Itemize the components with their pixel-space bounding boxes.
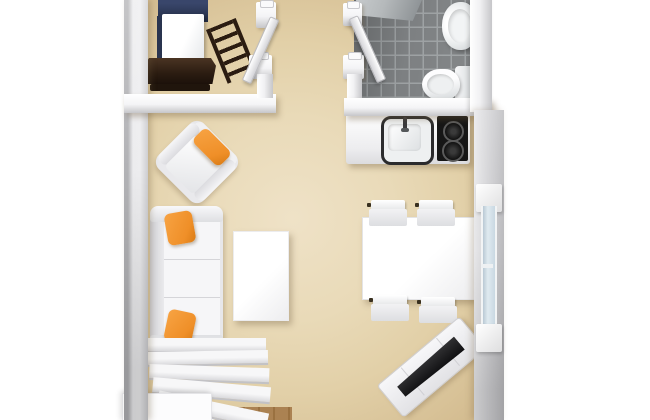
dining-chair [419, 297, 457, 324]
burner-icon [443, 121, 464, 142]
sofa-backrest [150, 211, 165, 346]
chair-seat [371, 304, 409, 321]
doorpost-cap [260, 0, 274, 8]
wall-bedroom-east-stub [257, 74, 273, 98]
window-glass [481, 206, 497, 332]
footboard-rail [150, 84, 210, 91]
dining-table [362, 217, 475, 300]
chair-seat [419, 306, 457, 323]
chair-foot [369, 298, 373, 302]
bed [140, 0, 240, 100]
kitchen-faucet-handle [401, 128, 409, 132]
chair-foot [415, 203, 419, 207]
burner-icon [442, 140, 464, 162]
toilet-seat [427, 74, 454, 95]
sofa [150, 206, 223, 351]
coffee-table [233, 231, 289, 321]
dining-chair [371, 295, 409, 322]
dining-chair [417, 200, 455, 227]
kitchen-sink [381, 116, 434, 165]
chair-seat [369, 209, 407, 226]
chair-foot [417, 300, 421, 304]
basin-bowl [448, 9, 472, 43]
footboard-bench [144, 58, 216, 84]
window-mullion [481, 264, 493, 268]
bed-duvet [162, 14, 204, 62]
chair-seat [417, 209, 455, 226]
wall-left-exterior [124, 0, 148, 420]
cooktop [437, 116, 468, 161]
sofa-pillow [163, 210, 196, 246]
wall-bathroom-east [470, 0, 492, 112]
window-jamb-bottom [476, 324, 502, 352]
doorpost-cap [348, 52, 362, 60]
dining-chair [369, 200, 407, 227]
wall-bathroom-west-stub [347, 74, 362, 100]
wall-bedroom-south [124, 94, 276, 113]
doorpost-cap [347, 1, 360, 9]
floor-plan [0, 0, 650, 420]
chair-foot [367, 203, 371, 207]
